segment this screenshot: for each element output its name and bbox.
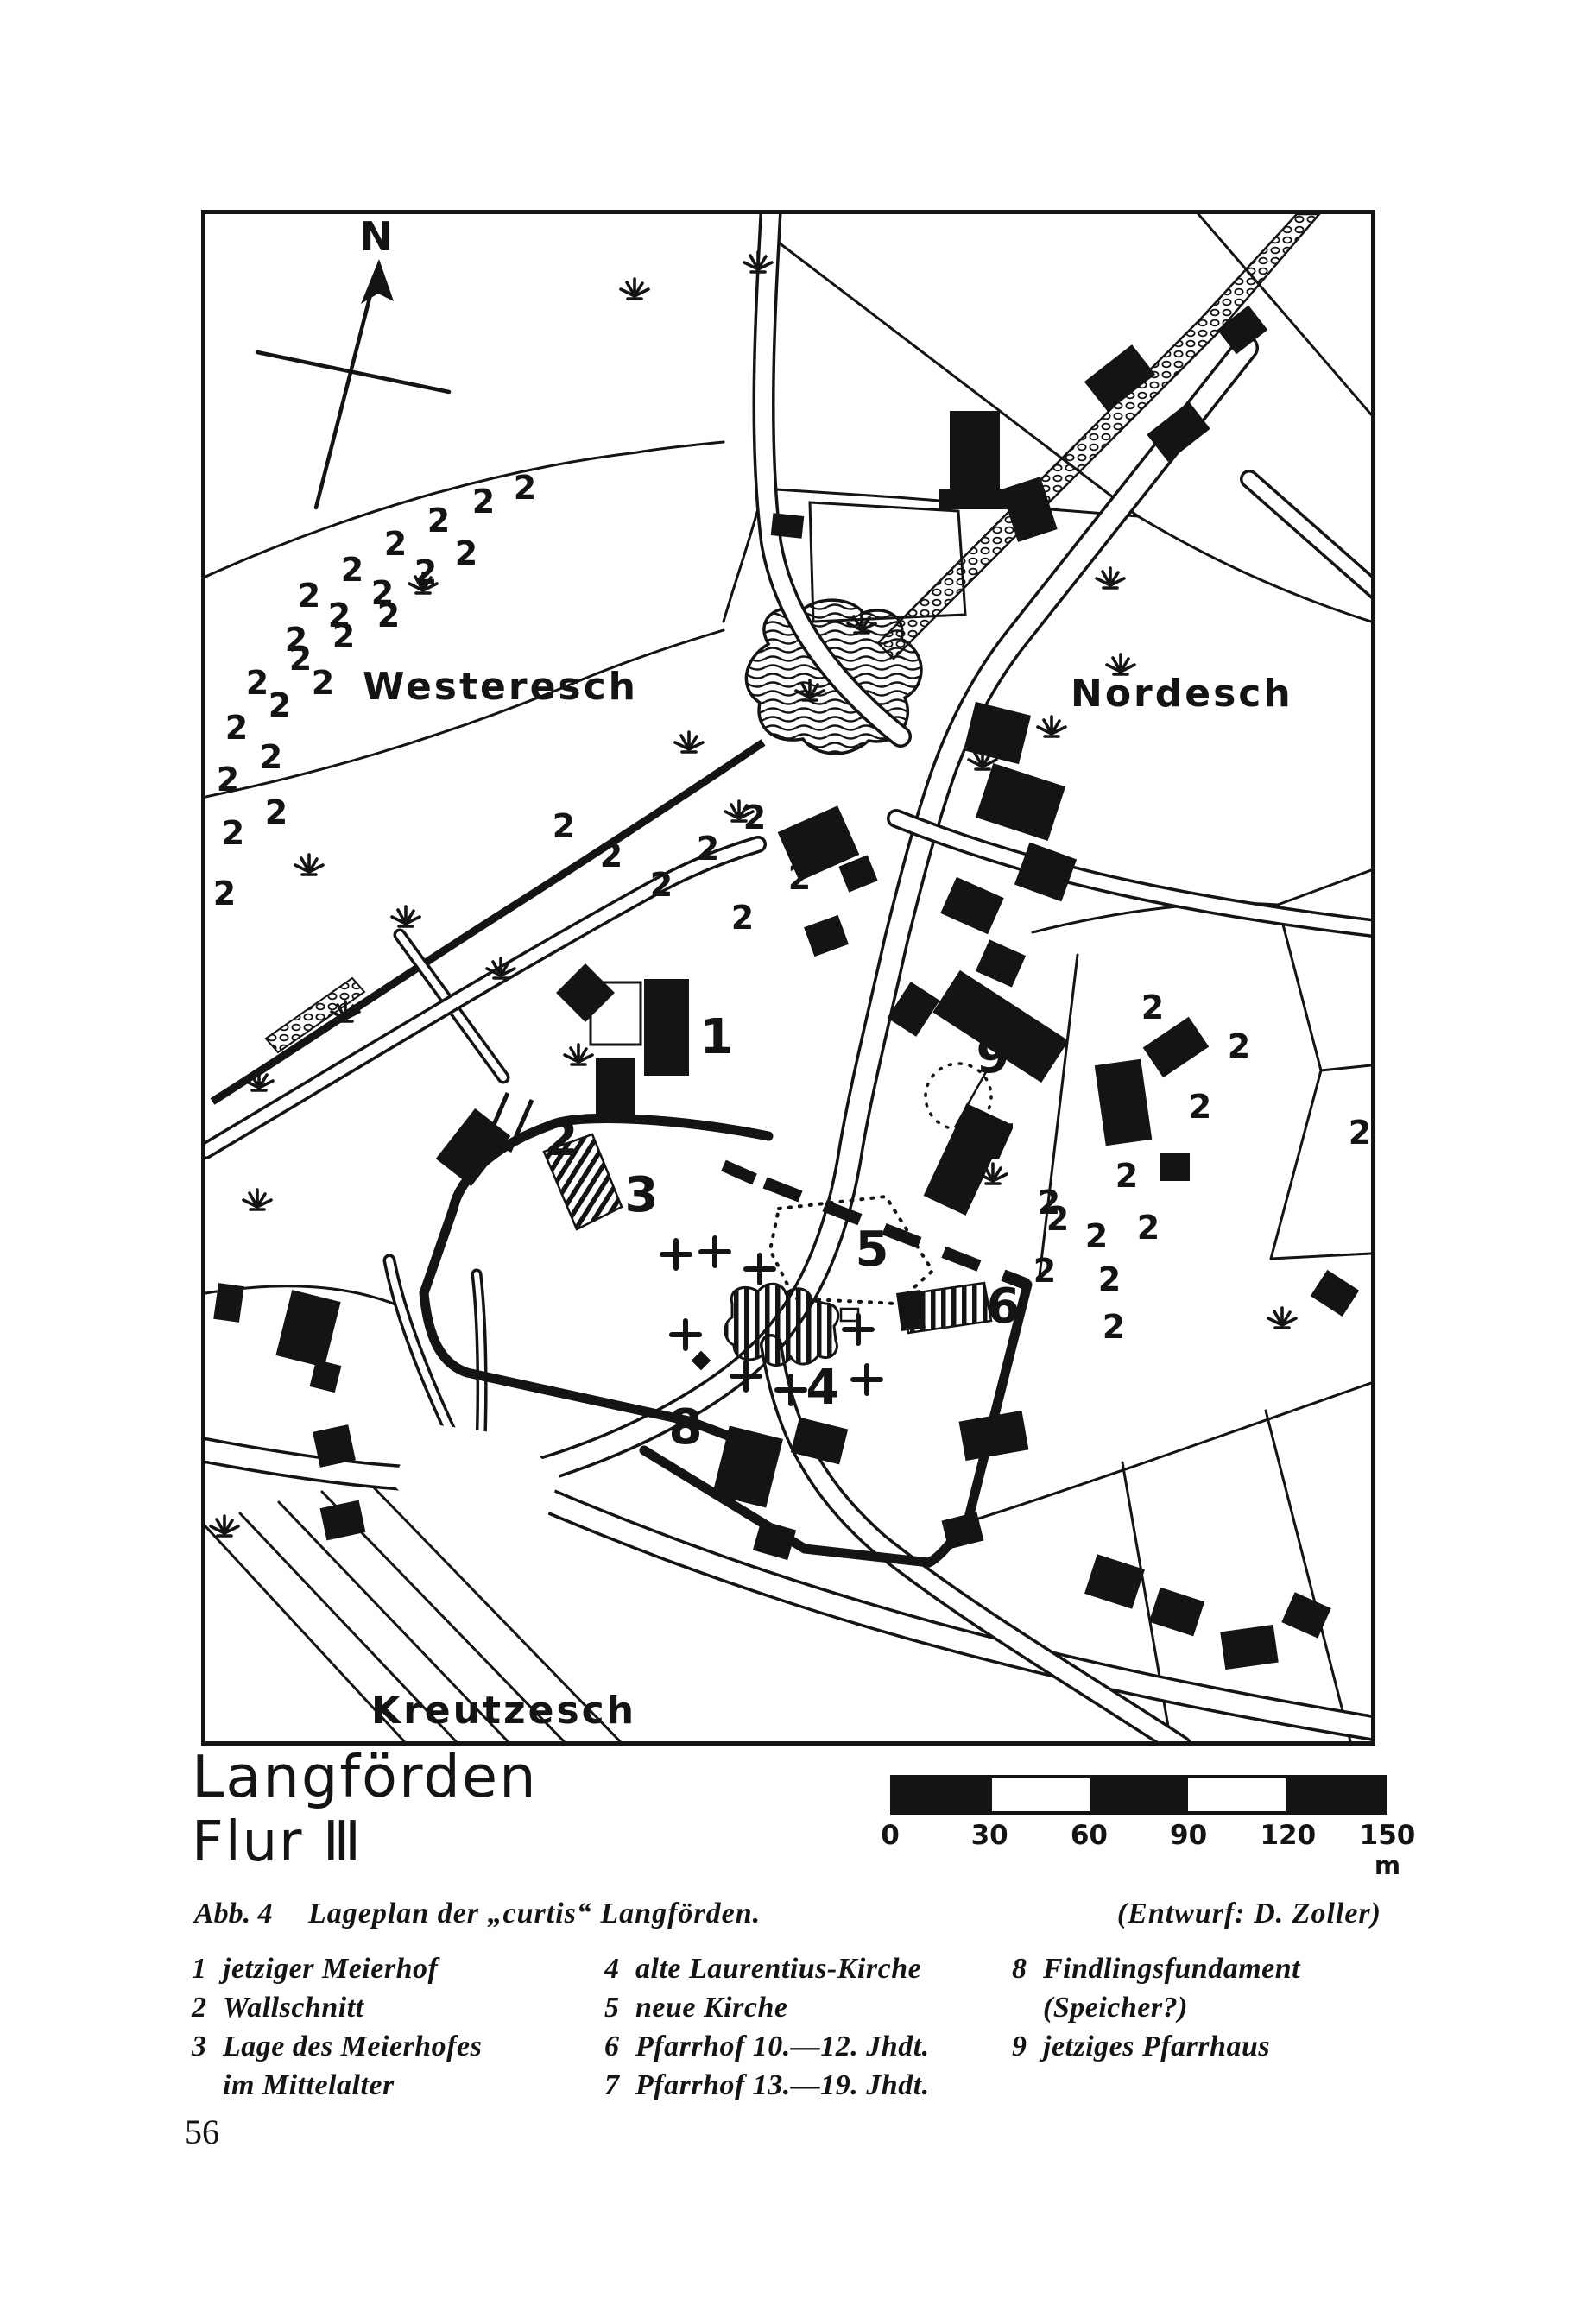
building-footprint xyxy=(771,513,805,539)
scale-tick: 0 xyxy=(881,1820,900,1851)
scale-segment xyxy=(1090,1778,1188,1811)
site-map-canvas: 2222222222222222222222222222222222222222… xyxy=(205,214,1371,1741)
building-footprint xyxy=(213,1283,244,1323)
vegetation-symbol: 2 xyxy=(1103,1308,1125,1346)
building-footprint xyxy=(556,963,615,1022)
compass-n-label: N xyxy=(360,214,394,260)
grass-tuft-icon xyxy=(243,1190,271,1209)
building-footprint xyxy=(1281,1592,1330,1638)
feature-marker-2: 2 xyxy=(545,1111,578,1167)
vegetation-symbol: 2 xyxy=(1038,1184,1060,1222)
vegetation-symbol: 2 xyxy=(731,899,754,937)
legend-item-1: 1jetziger Meierhof xyxy=(192,1949,482,1988)
scale-bar-ticks: m 0306090120150 xyxy=(890,1820,1387,1854)
legend-item-text: jetziger Meierhof xyxy=(223,1949,482,1988)
vegetation-symbol: 2 xyxy=(553,807,575,845)
building-footprint xyxy=(644,979,689,1076)
stream-band-northeast xyxy=(878,214,1319,659)
legend-column-1: 1jetziger Meierhof2Wallschnitt3Lage des … xyxy=(192,1949,482,2105)
feature-marker-9: 9 xyxy=(976,1028,1010,1084)
vegetation-symbol: 2 xyxy=(1085,1217,1108,1255)
building-footprint xyxy=(976,763,1065,841)
grass-tuft-icon xyxy=(1097,568,1124,588)
vegetation-symbol: 2 xyxy=(289,640,312,678)
legend-item-text: Pfarrhof 13.—19. Jhdt. xyxy=(635,2066,930,2105)
vegetation-symbol: 2 xyxy=(1349,1114,1371,1152)
vegetation-symbol: 2 xyxy=(514,469,536,507)
scale-segment xyxy=(894,1778,992,1811)
legend-item-number: 4 xyxy=(604,1949,635,1988)
map-title-line2: Flur Ⅲ xyxy=(192,1813,538,1872)
grave-cross xyxy=(662,1241,690,1268)
vegetation-symbol: 2 xyxy=(312,664,334,702)
curtis-wall-stub xyxy=(724,1165,755,1179)
legend-item-7: 7Pfarrhof 13.—19. Jhdt. xyxy=(604,2066,930,2105)
roads xyxy=(205,214,1371,1741)
map-title-line1: Langförden xyxy=(192,1746,538,1808)
legend-item-3: 3Lage des Meierhofesim Mittelalter xyxy=(192,2027,482,2105)
feature-marker-5: 5 xyxy=(856,1222,889,1278)
building-footprint xyxy=(1149,1588,1204,1637)
scale-tick: 30 xyxy=(971,1820,1008,1851)
vegetation-symbol: 2 xyxy=(260,738,282,776)
legend-item-8: 8Findlingsfundament(Speicher?) xyxy=(1012,1949,1300,2027)
feature-marker-3: 3 xyxy=(625,1167,659,1223)
site-map-frame: 2222222222222222222222222222222222222222… xyxy=(201,210,1375,1746)
vegetation-symbol: 2 xyxy=(1141,988,1164,1026)
feature-4-old-church-plan xyxy=(725,1284,838,1365)
area-label-westeresch: Westeresch xyxy=(363,665,638,709)
scale-unit: m xyxy=(1375,1851,1400,1880)
legend-item-number: 2 xyxy=(192,1988,223,2027)
building-footprint xyxy=(1220,1625,1279,1670)
building-footprint xyxy=(436,1108,511,1186)
building-footprint xyxy=(1084,1554,1145,1609)
legend-item-text: alte Laurentius-Kirche xyxy=(635,1949,930,1988)
scanned-book-page: { "page": { "number": "56", "ink": "#141… xyxy=(0,0,1580,2324)
parcel-line xyxy=(1266,1411,1350,1741)
vegetation-symbol: 2 xyxy=(427,502,450,540)
scale-tick: 120 xyxy=(1260,1820,1316,1851)
legend-item-4: 4alte Laurentius-Kirche xyxy=(604,1949,930,1988)
building-footprint xyxy=(1160,1153,1190,1181)
legend-item-text: Pfarrhof 10.—12. Jhdt. xyxy=(635,2027,930,2066)
grass-tuft-icon xyxy=(1268,1308,1296,1328)
area-label-nordesch: Nordesch xyxy=(1071,672,1293,716)
building-footprint xyxy=(1095,1059,1153,1146)
grass-tuft-icon xyxy=(295,855,323,875)
building-footprint xyxy=(959,1411,1029,1461)
vegetation-symbol: 2 xyxy=(377,597,400,635)
building-footprint xyxy=(313,1424,356,1468)
grave-cross xyxy=(672,1321,699,1348)
parcel-line xyxy=(1271,1254,1371,1259)
legend-item-9: 9jetziges Pfarrhaus xyxy=(1012,2027,1300,2066)
parcel-line xyxy=(1271,905,1321,1259)
vegetation-symbol: 2 xyxy=(384,525,407,563)
grass-tuft-icon xyxy=(565,1045,592,1064)
parcel-boundary-lines xyxy=(205,214,1371,1741)
legend-item-number: 5 xyxy=(604,1988,635,2027)
figure-label: Abb. 4 xyxy=(194,1898,273,1930)
grave-cross xyxy=(701,1238,729,1266)
feature-marker-1: 1 xyxy=(700,1009,734,1065)
scale-tick: 60 xyxy=(1071,1820,1108,1851)
building-footprint xyxy=(940,877,1004,934)
building-footprint xyxy=(939,489,1008,509)
legend-item-2: 2Wallschnitt xyxy=(192,1988,482,2027)
legend-item-number: 6 xyxy=(604,2027,635,2066)
scale-segment xyxy=(1286,1778,1384,1811)
legend-item-6: 6Pfarrhof 10.—12. Jhdt. xyxy=(604,2027,930,2066)
vegetation-symbol: 2 xyxy=(650,866,673,904)
legend-item-number: 3 xyxy=(192,2027,223,2105)
building-footprint xyxy=(275,1290,340,1367)
vegetation-symbol: 2 xyxy=(697,830,719,868)
legend-column-3: 8Findlingsfundament(Speicher?)9jetziges … xyxy=(1012,1949,1300,2066)
scale-bar-segments xyxy=(890,1775,1387,1815)
scale-bar: m 0306090120150 xyxy=(890,1775,1387,1854)
vegetation-symbol: 2 xyxy=(1098,1260,1121,1298)
parcel-line xyxy=(970,1383,1371,1521)
legend-item-text: jetziges Pfarrhaus xyxy=(1043,2027,1300,2066)
vegetation-symbol: 2 xyxy=(455,534,477,572)
road-surface xyxy=(1249,479,1371,594)
grass-tuft-icon xyxy=(211,1516,238,1536)
building-footprint xyxy=(942,1512,984,1549)
legend-item-number: 1 xyxy=(192,1949,223,1988)
grave-cross xyxy=(746,1255,774,1283)
building-footprint xyxy=(1014,843,1077,902)
area-label-kreutzesch: Kreutzesch xyxy=(371,1689,636,1733)
vegetation-symbol: 2 xyxy=(1115,1157,1138,1195)
scale-tick: 150 xyxy=(1360,1820,1416,1851)
vegetation-symbol: 2 xyxy=(225,709,248,747)
grass-tuft-icon xyxy=(1038,717,1065,736)
vegetation-symbol: 2 xyxy=(1189,1088,1211,1126)
feature-marker-6: 6 xyxy=(987,1279,1021,1335)
vegetation-symbol: 2 xyxy=(1228,1027,1250,1065)
map-title: Langförden Flur Ⅲ xyxy=(192,1746,538,1872)
grass-tuft-icon xyxy=(392,906,420,926)
building-footprint xyxy=(596,1058,635,1122)
grass-tuft-icon xyxy=(621,279,648,299)
feature-6-pfarrhof-hatch xyxy=(896,1283,991,1333)
grass-tuft-icon xyxy=(675,732,703,752)
vegetation-symbol: 2 xyxy=(332,617,355,655)
figure-caption: Lageplan der „curtis“ Langförden. xyxy=(308,1898,761,1930)
legend-column-2: 4alte Laurentius-Kirche5neue Kirche6Pfar… xyxy=(604,1949,930,2105)
scale-segment xyxy=(992,1778,1090,1811)
parcel-line xyxy=(1138,516,1371,622)
vegetation-symbol: 2 xyxy=(472,483,495,521)
feature-marker-8: 8 xyxy=(669,1399,703,1456)
vegetation-symbol: 2 xyxy=(341,551,363,589)
road-edge xyxy=(205,348,1246,1480)
legend-item-5: 5neue Kirche xyxy=(604,1988,930,2027)
vegetation-symbol: 2 xyxy=(600,837,623,875)
feature-marker-4: 4 xyxy=(806,1360,840,1416)
legend-item-number: 7 xyxy=(604,2066,635,2105)
vegetation-symbol: 2 xyxy=(213,875,236,913)
north-arrow: N xyxy=(257,214,449,508)
parcel-line xyxy=(1321,1065,1371,1070)
legend-item-text: Lage des Meierhofesim Mittelalter xyxy=(223,2027,482,2105)
building-footprint xyxy=(1311,1270,1360,1317)
scale-tick: 90 xyxy=(1170,1820,1207,1851)
building-footprint xyxy=(950,411,1000,494)
vegetation-symbol: 2 xyxy=(298,577,320,615)
vegetation-symbol: 2 xyxy=(222,814,244,852)
vegetation-symbol: 2 xyxy=(246,664,269,702)
vegetation-symbol: 2 xyxy=(788,859,811,897)
vegetation-symbol: 2 xyxy=(1137,1209,1160,1247)
building-footprint xyxy=(976,939,1026,987)
legend-item-text: neue Kirche xyxy=(635,1988,930,2027)
scale-segment xyxy=(1188,1778,1286,1811)
legend-item-text: Findlingsfundament(Speicher?) xyxy=(1043,1949,1300,2027)
vegetation-symbol: 2 xyxy=(1033,1252,1056,1290)
legend-item-text: Wallschnitt xyxy=(223,1988,482,2027)
building-footprint xyxy=(320,1500,366,1541)
building-footprint xyxy=(804,915,849,957)
road-edge xyxy=(508,1483,1371,1729)
legend-item-number: 9 xyxy=(1012,2027,1043,2066)
figure-credit: (Entwurf: D. Zoller) xyxy=(1117,1898,1381,1930)
road-junction xyxy=(391,1423,559,1535)
vegetation-symbol: 2 xyxy=(217,761,239,799)
vegetation-symbol: 2 xyxy=(269,686,291,724)
parcel-line xyxy=(1278,870,1371,905)
page-number: 56 xyxy=(185,2112,219,2152)
road-surface xyxy=(205,348,1246,1480)
vegetation-symbol: 2 xyxy=(265,793,288,831)
feature-marker-7: 7 xyxy=(983,1115,1017,1171)
building-footprint xyxy=(964,702,1031,764)
grave-cross xyxy=(853,1366,881,1393)
legend-item-number: 8 xyxy=(1012,1949,1043,2027)
wall-marker-square xyxy=(692,1351,711,1371)
map-features xyxy=(544,982,991,1370)
